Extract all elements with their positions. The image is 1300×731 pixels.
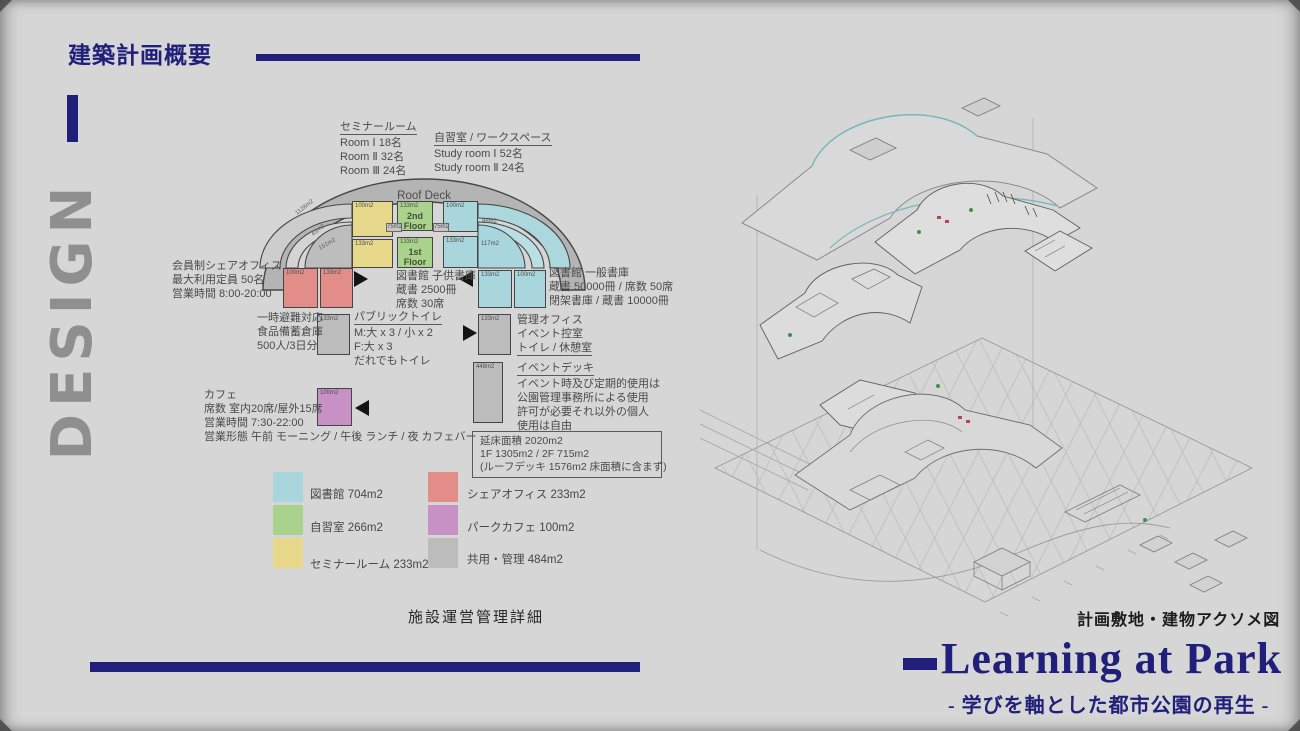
block-share-office-right: 133m2: [320, 268, 353, 308]
legend-swatch-cafe: [428, 505, 458, 535]
corner-shade-top-left: [0, 0, 12, 12]
seminar-note-title: セミナールーム: [340, 120, 417, 135]
legend-label-cafe: パークカフェ 100m2: [467, 519, 574, 535]
legend-swatch-seminar: [273, 538, 303, 568]
corner-shade-bottom-right: [1288, 719, 1300, 731]
floor-2-label: 2nd Floor: [398, 211, 432, 231]
seminar-note: セミナールーム Room Ⅰ 18名 Room Ⅱ 32名 Room Ⅲ 24名: [340, 120, 417, 178]
total-area-box: 延床面積 2020m2 1F 1305m2 / 2F 715m2 (ルーフデッキ…: [472, 431, 662, 478]
header-vertical-bar: [67, 95, 78, 142]
block-library-low-right: 100m2: [514, 270, 546, 308]
design-side-label: DESIGN: [40, 170, 104, 470]
corner-shade-bottom-left: [0, 719, 12, 731]
footer-title-bar: [903, 658, 937, 670]
event-deck-note: イベントデッキ イベント時及び定期的使用は 公園管理事務所による使用 許可が必要…: [517, 361, 660, 433]
legend-label-study: 自習室 266m2: [310, 519, 383, 535]
presentation-board: 建築計画概要 DESIGN Roof Deck 1128m2 43m2 151m…: [0, 0, 1300, 731]
floor-1-label: 1st Floor: [398, 247, 432, 267]
entrance-arrow-share: [354, 271, 368, 287]
legend-label-common: 共用・管理 484m2: [467, 551, 563, 567]
library-quarter-area: 117m2: [481, 241, 500, 247]
legend-swatch-study: [273, 505, 303, 535]
legend-swatch-share-office: [428, 472, 458, 502]
public-toilet-note-title: パブリックトイレ: [354, 310, 442, 325]
admin-office-note: 管理オフィス イベント控室 トイレ / 休憩室: [517, 313, 592, 357]
block-study-2f: 133m2 2nd Floor: [397, 201, 433, 231]
block-library-1f: 133m2: [443, 236, 478, 268]
axon-1f-layer: [760, 263, 922, 359]
block-admin-office: 133m2: [478, 314, 511, 355]
connector-left: 75m2: [386, 223, 402, 232]
legend-label-share-office: シェアオフィス 233m2: [467, 486, 586, 502]
project-subtitle: - 学びを軸とした都市公園の再生 -: [948, 689, 1269, 718]
cafe-note: カフェ 席数 室内20席/屋外15席 営業時間 7:30-22:00 営業形態 …: [204, 388, 477, 444]
library-ring-area: 88m2: [482, 219, 498, 225]
header-rule: [256, 54, 640, 61]
connector-right: 75m2: [433, 223, 449, 232]
axon-site-grid: [700, 338, 1252, 616]
block-share-office-left: 100m2: [283, 268, 318, 308]
study-note: 自習室 / ワークスペース Study room Ⅰ 52名 Study roo…: [434, 131, 552, 175]
general-library-note: 図書館 一般書庫 蔵書 50000冊 / 席数 50席 閉架書庫 / 蔵書 10…: [549, 266, 673, 308]
public-toilet-note: パブリックトイレ M:大 x 3 / 小 x 2 F:大 x 3 だれでもトイレ: [354, 310, 442, 368]
children-library-note: 図書館 子供書庫 蔵書 2500冊 席数 30席: [396, 269, 476, 311]
block-seminar-1f: 133m2: [352, 239, 393, 268]
evacuation-note: 一時避難対応 食品備蓄倉庫 500人/3日分: [257, 311, 323, 353]
entrance-arrow-admin: [463, 325, 477, 341]
block-library-low-left: 133m2: [478, 270, 512, 308]
legend-label-seminar: セミナールーム 233m2: [310, 556, 429, 572]
caption-facility-detail: 施設運営管理詳細: [408, 606, 544, 627]
legend-swatch-library: [273, 472, 303, 502]
study-note-title: 自習室 / ワークスペース: [434, 131, 552, 146]
event-deck-note-title: イベントデッキ: [517, 361, 594, 376]
block-study-1f: 133m2 1st Floor: [397, 237, 433, 268]
footer-rule: [90, 662, 640, 672]
corner-shade-top-right: [1288, 0, 1300, 12]
axonometric-drawing: [700, 80, 1290, 645]
axon-2f-wing: [1025, 231, 1092, 271]
block-event-deck: 448m2: [473, 362, 503, 423]
page-title: 建築計画概要: [68, 36, 212, 70]
share-office-note: 会員制シェアオフィス 最大利用定員 50名 営業時間 8:00-20:00: [172, 259, 282, 301]
legend-label-library: 図書館 704m2: [310, 486, 383, 502]
legend-swatch-common: [428, 538, 458, 568]
